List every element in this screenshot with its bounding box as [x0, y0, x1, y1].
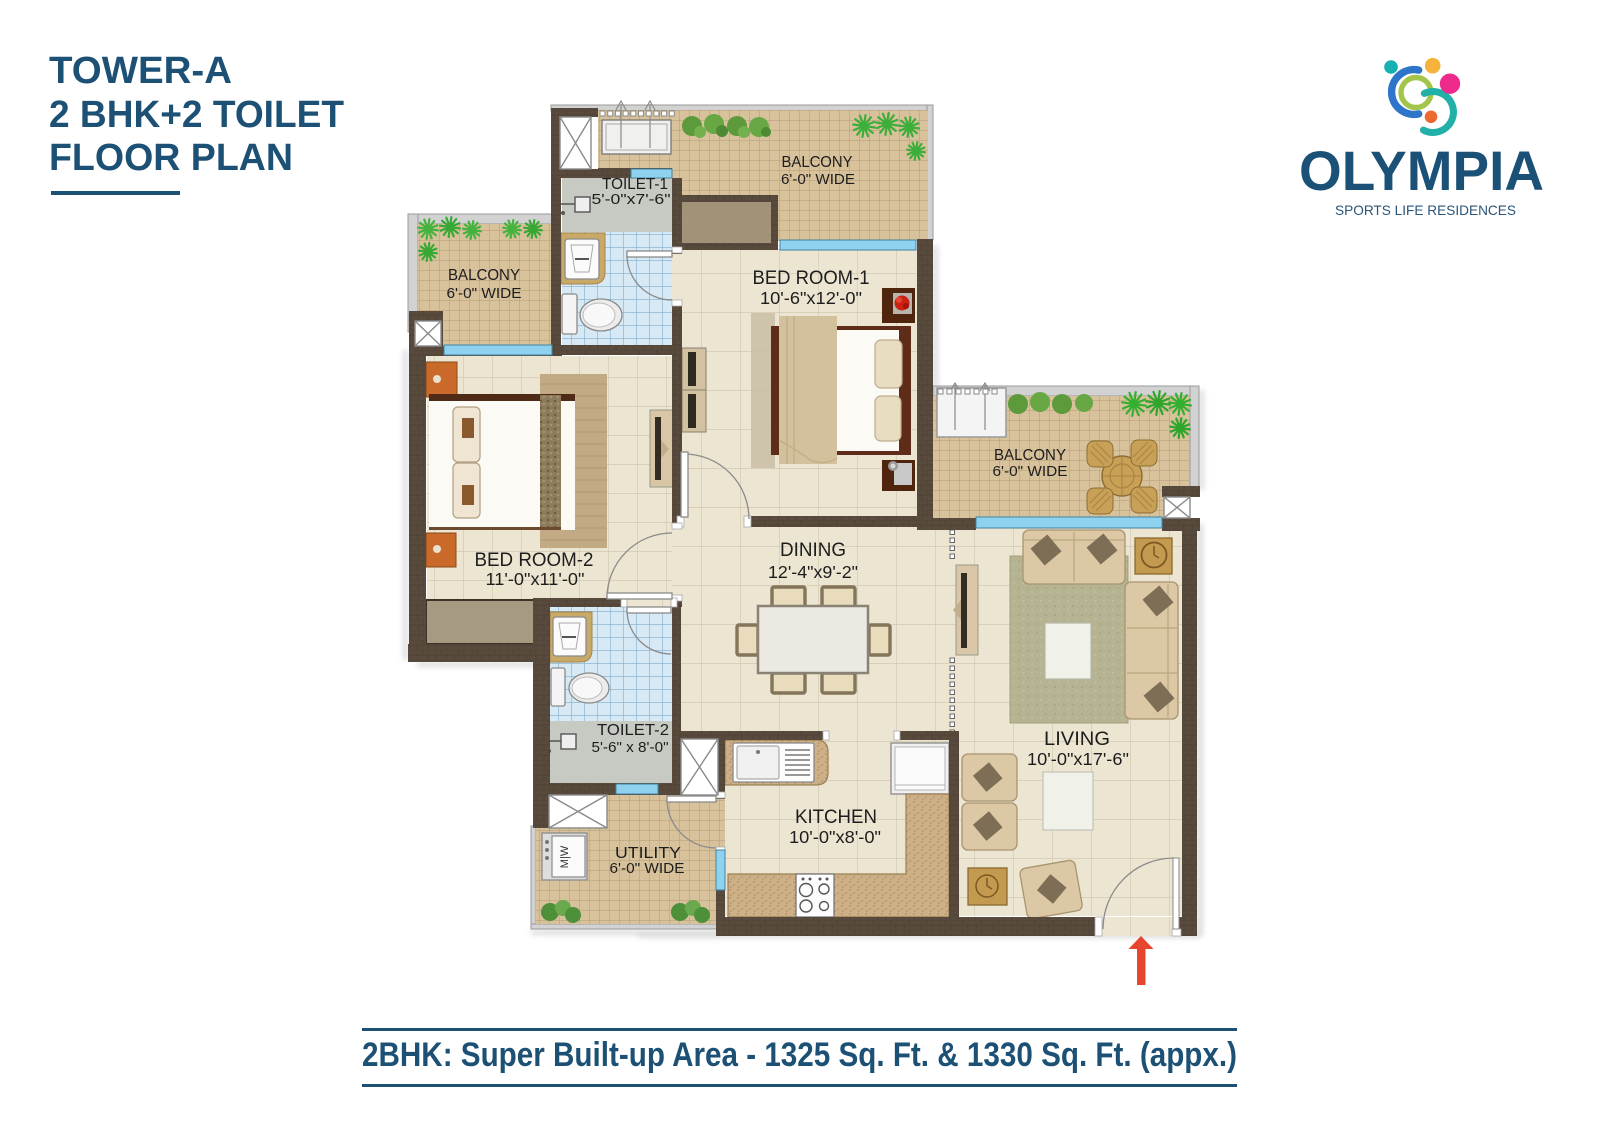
svg-text:6'-0" WIDE: 6'-0" WIDE — [993, 464, 1068, 480]
svg-text:FLOOR PLAN: FLOOR PLAN — [49, 137, 293, 179]
svg-text:BED ROOM-2: BED ROOM-2 — [475, 549, 594, 571]
svg-text:UTILITY: UTILITY — [615, 845, 681, 862]
svg-text:10'-0"x8'-0": 10'-0"x8'-0" — [789, 827, 881, 847]
svg-text:OLYMPIA: OLYMPIA — [1299, 139, 1544, 202]
svg-text:BED ROOM-1: BED ROOM-1 — [753, 267, 870, 289]
svg-text:BALCONY: BALCONY — [448, 267, 520, 284]
svg-text:5'-0"x7'-6": 5'-0"x7'-6" — [592, 192, 671, 208]
svg-text:BALCONY: BALCONY — [782, 154, 853, 171]
svg-text:LIVING: LIVING — [1044, 728, 1110, 750]
svg-text:M|W: M|W — [559, 845, 571, 868]
svg-text:DINING: DINING — [780, 539, 846, 561]
svg-text:2 BHK+2 TOILET: 2 BHK+2 TOILET — [49, 94, 344, 136]
svg-text:5'-6" x 8'-0": 5'-6" x 8'-0" — [592, 740, 669, 756]
svg-text:6'-0" WIDE: 6'-0" WIDE — [447, 286, 522, 302]
svg-text:6'-0" WIDE: 6'-0" WIDE — [781, 172, 855, 188]
svg-text:2BHK: Super Built-up Area - 13: 2BHK: Super Built-up Area - 1325 Sq. Ft.… — [362, 1036, 1237, 1074]
svg-text:KITCHEN: KITCHEN — [795, 806, 877, 828]
svg-text:10'-0"x17'-6": 10'-0"x17'-6" — [1027, 749, 1129, 769]
svg-text:SPORTS LIFE RESIDENCES: SPORTS LIFE RESIDENCES — [1335, 202, 1516, 218]
svg-text:6'-0" WIDE: 6'-0" WIDE — [610, 861, 685, 877]
svg-text:11'-0"x11'-0": 11'-0"x11'-0" — [486, 569, 585, 589]
svg-text:12'-4"x9'-2": 12'-4"x9'-2" — [768, 562, 858, 582]
svg-text:TOWER-A: TOWER-A — [49, 50, 232, 92]
svg-text:TOILET-2: TOILET-2 — [597, 722, 669, 739]
svg-text:10'-6"x12'-0": 10'-6"x12'-0" — [760, 288, 862, 308]
svg-text:TOILET-1: TOILET-1 — [602, 176, 668, 193]
svg-text:BALCONY: BALCONY — [994, 447, 1066, 464]
